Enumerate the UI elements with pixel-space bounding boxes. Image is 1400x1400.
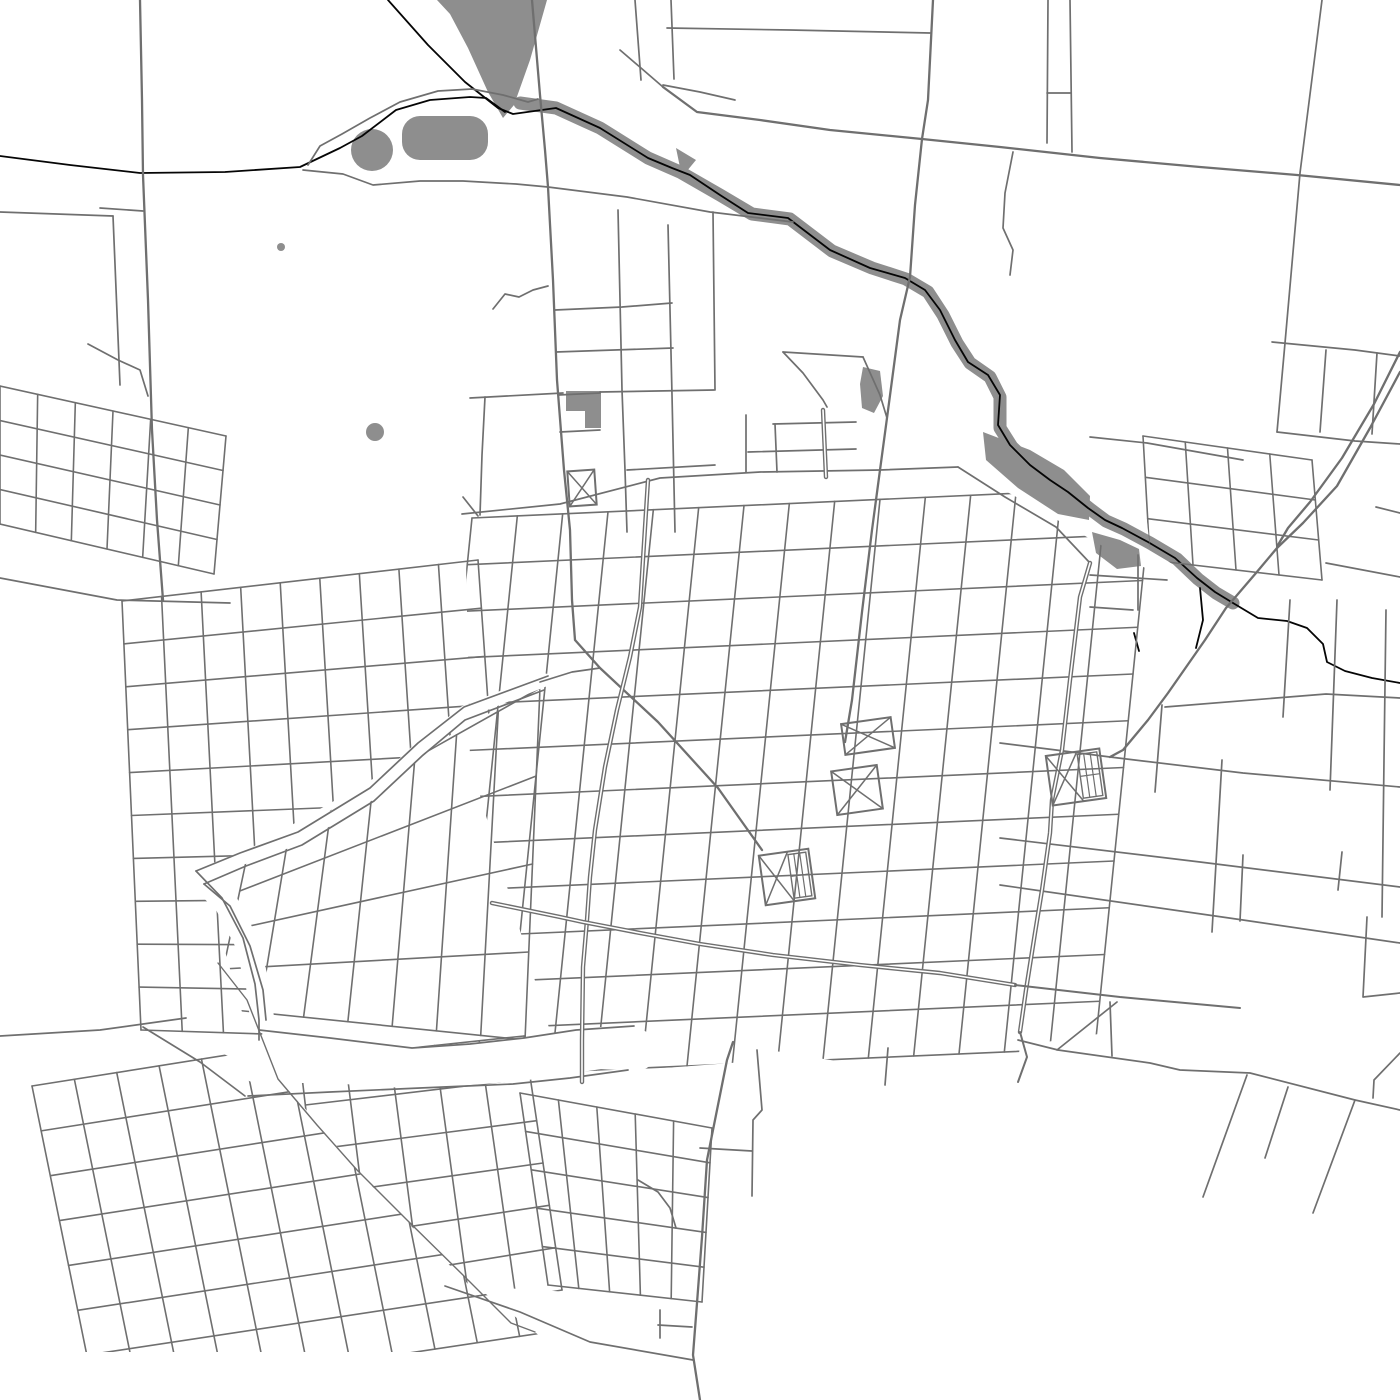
street <box>1090 437 1243 460</box>
street <box>556 348 673 352</box>
grid-street <box>78 1239 544 1310</box>
grid-street <box>478 560 512 1042</box>
avenue-outer <box>582 480 648 1082</box>
street <box>0 578 230 603</box>
grid-street <box>141 1030 512 1042</box>
grid-street <box>359 574 388 1038</box>
street <box>752 1050 762 1196</box>
street <box>1155 705 1162 792</box>
grid-street <box>1228 448 1237 570</box>
street <box>1090 575 1167 580</box>
grid-street <box>59 1148 525 1220</box>
street <box>493 286 548 309</box>
main-road <box>532 0 762 850</box>
plaza-hatch <box>1080 774 1099 777</box>
main-road <box>693 1042 733 1400</box>
street <box>555 303 672 310</box>
street <box>783 352 827 407</box>
street <box>1000 838 1400 887</box>
grid-far-west-top <box>0 386 226 574</box>
street <box>773 422 856 424</box>
street <box>1265 1087 1288 1158</box>
avenue-median <box>582 480 648 1082</box>
grid-street <box>463 581 1143 612</box>
grid-street <box>122 560 478 601</box>
grid-street <box>124 608 482 644</box>
grid-street <box>531 1170 708 1198</box>
grid-street <box>50 1103 516 1176</box>
grid-street <box>399 569 430 1039</box>
avenue-tail <box>1015 985 1240 1008</box>
street <box>635 0 641 80</box>
grid-street <box>444 768 1124 799</box>
grid-street <box>345 1055 378 1322</box>
grid-street <box>1270 454 1279 575</box>
waterway-layer <box>0 0 1400 683</box>
street <box>1338 852 1342 890</box>
grid-street <box>244 1052 308 1368</box>
grid-street <box>126 656 485 686</box>
main-road <box>1278 352 1400 545</box>
street <box>1090 607 1133 610</box>
street <box>618 210 627 532</box>
grid-street <box>1312 460 1322 580</box>
street <box>1018 1040 1400 1110</box>
street <box>1240 855 1243 921</box>
pond <box>351 129 393 171</box>
street <box>0 1018 186 1036</box>
street <box>600 390 714 392</box>
map-canvas <box>0 0 1400 1400</box>
grid-street <box>458 627 1138 658</box>
street <box>1373 1053 1400 1098</box>
grid-street <box>453 674 1133 705</box>
grid-street <box>96 1330 562 1400</box>
street <box>560 430 600 432</box>
grid-street <box>201 1059 265 1374</box>
plaza <box>831 765 883 815</box>
street <box>1000 885 1400 943</box>
plaza <box>841 717 895 755</box>
stream-line <box>1196 588 1203 648</box>
street <box>1047 0 1048 143</box>
street <box>1382 610 1386 917</box>
street <box>1212 760 1222 932</box>
main-road <box>140 0 163 600</box>
grid-street <box>69 1194 535 1266</box>
street <box>1277 0 1322 432</box>
street <box>100 208 143 211</box>
street <box>1283 600 1290 717</box>
grid-street <box>159 1066 223 1381</box>
pond <box>277 243 285 251</box>
grid-street <box>117 1073 181 1388</box>
grid-street <box>671 1121 673 1299</box>
street <box>470 393 563 398</box>
street <box>667 28 930 33</box>
street <box>775 424 777 472</box>
grid-street <box>74 1079 138 1393</box>
main-road <box>845 0 933 742</box>
street <box>1313 1100 1355 1213</box>
grid-street <box>137 944 505 945</box>
grid-street <box>548 1285 702 1302</box>
grid-street <box>542 1247 704 1268</box>
grid-west-main <box>122 560 512 1042</box>
pond <box>402 116 488 160</box>
plaza-path <box>831 765 883 815</box>
grid-street <box>316 1163 543 1195</box>
street <box>627 465 715 470</box>
grid-street <box>415 518 472 1078</box>
street <box>480 397 485 515</box>
street <box>1272 342 1400 356</box>
grid-street <box>558 1100 578 1288</box>
city-map <box>0 0 1400 1400</box>
grid-street <box>597 1107 610 1292</box>
street <box>1165 694 1400 707</box>
street <box>143 1027 245 1096</box>
grid-street <box>332 1290 562 1330</box>
street <box>1057 1002 1117 1050</box>
street <box>885 1048 888 1085</box>
main-road <box>663 87 1400 185</box>
grid-street <box>635 1114 640 1295</box>
grid-street <box>425 955 1105 985</box>
street <box>671 0 674 79</box>
street <box>713 212 715 390</box>
grid-street <box>32 1086 96 1400</box>
grid-central-city <box>415 487 1152 1078</box>
street <box>1110 1002 1112 1056</box>
water-body <box>566 391 601 428</box>
street <box>663 85 735 100</box>
grid-street <box>130 753 492 773</box>
grid-street <box>311 1121 537 1150</box>
street <box>1203 1075 1247 1197</box>
grid-street <box>128 705 489 730</box>
street <box>0 212 113 216</box>
street <box>1363 917 1400 997</box>
water-layer <box>277 0 1233 603</box>
corridor <box>200 878 262 1018</box>
grid-street <box>526 1131 710 1162</box>
street <box>1320 350 1326 432</box>
street <box>1277 432 1400 444</box>
grid-street <box>139 987 509 994</box>
street <box>783 352 863 357</box>
street <box>748 449 856 452</box>
grid-street <box>420 1001 1100 1031</box>
water-body <box>860 367 883 413</box>
grid-street <box>321 1205 549 1240</box>
street <box>658 1325 692 1327</box>
road-layer <box>0 0 1400 1400</box>
grid-street <box>133 849 498 858</box>
street <box>1326 563 1400 577</box>
grid-street <box>537 1208 706 1232</box>
avenue-layer <box>218 410 1240 1332</box>
grid-street <box>520 1093 712 1128</box>
pond <box>366 423 384 441</box>
street <box>1376 507 1400 513</box>
street <box>1070 0 1072 152</box>
street <box>620 50 663 87</box>
corridor <box>258 1048 636 1068</box>
grid-street <box>1185 442 1193 565</box>
street <box>1003 152 1013 275</box>
street <box>668 225 675 532</box>
